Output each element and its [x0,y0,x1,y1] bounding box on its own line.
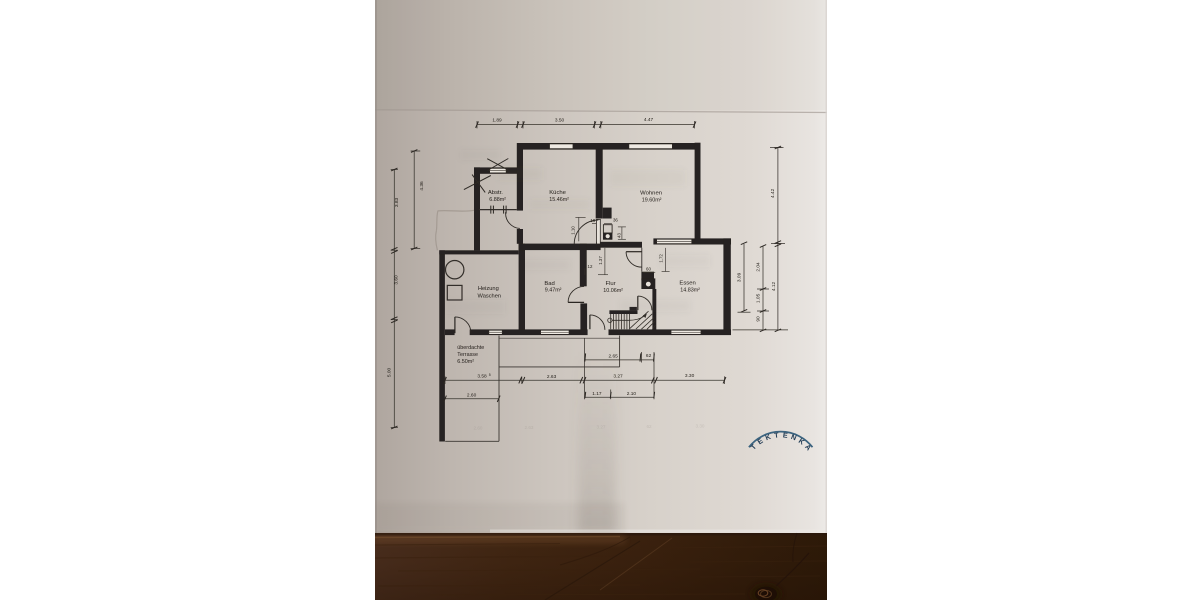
svg-text:1.37: 1.37 [598,256,603,265]
svg-text:62: 62 [646,353,652,359]
svg-text:Abstr.: Abstr. [488,190,503,196]
svg-text:Essen: Essen [679,281,695,287]
svg-text:3.27: 3.27 [597,425,606,430]
svg-text:5: 5 [489,373,491,377]
svg-text:3.50: 3.50 [555,117,565,123]
svg-text:Waschen: Waschen [478,293,502,299]
svg-text:4.47: 4.47 [644,117,654,123]
svg-text:2.60: 2.60 [467,393,477,399]
svg-text:1.05: 1.05 [756,293,762,303]
svg-text:2.04: 2.04 [756,262,762,272]
svg-text:3.60: 3.60 [393,275,399,285]
svg-text:1.17: 1.17 [592,391,602,397]
svg-text:60: 60 [646,267,651,272]
svg-text:überdachte: überdachte [457,345,484,351]
svg-text:3.27: 3.27 [613,374,623,380]
svg-text:Terrasse: Terrasse [457,352,478,358]
svg-text:9.47m²: 9.47m² [545,288,562,294]
svg-text:90: 90 [756,316,762,322]
svg-text:3.30: 3.30 [685,373,695,379]
svg-text:3.30: 3.30 [696,424,705,429]
svg-text:Wohnen: Wohnen [640,191,662,197]
svg-text:6.88m²: 6.88m² [489,197,506,203]
svg-text:3.09: 3.09 [737,272,743,282]
svg-text:2.60: 2.60 [474,426,483,431]
svg-text:18: 18 [590,218,595,223]
svg-text:36: 36 [613,218,618,223]
svg-text:4.42: 4.42 [770,188,776,198]
svg-text:19.60m²: 19.60m² [642,197,662,203]
svg-text:6.50m²: 6.50m² [457,359,474,365]
svg-text:2.10: 2.10 [627,391,637,397]
svg-text:12: 12 [588,264,593,269]
svg-text:1.10: 1.10 [571,226,576,235]
svg-text:3.58: 3.58 [477,374,487,380]
svg-text:Flur: Flur [606,281,616,287]
svg-text:Küche: Küche [549,190,566,196]
svg-text:4.36: 4.36 [419,181,425,191]
svg-text:Heizung: Heizung [478,286,499,292]
svg-text:2.63: 2.63 [547,374,557,380]
svg-text:Bad: Bad [544,281,554,287]
svg-text:2.65: 2.65 [609,353,619,359]
svg-text:10.06m²: 10.06m² [603,288,623,294]
svg-text:43: 43 [617,233,622,238]
svg-text:3.83: 3.83 [394,198,400,208]
svg-text:14.83m²: 14.83m² [680,287,700,293]
svg-text:1.89: 1.89 [492,118,502,124]
svg-text:62: 62 [646,424,652,429]
svg-text:5.00: 5.00 [386,368,392,378]
svg-text:4.12: 4.12 [771,282,777,292]
svg-text:2.63: 2.63 [525,425,534,430]
